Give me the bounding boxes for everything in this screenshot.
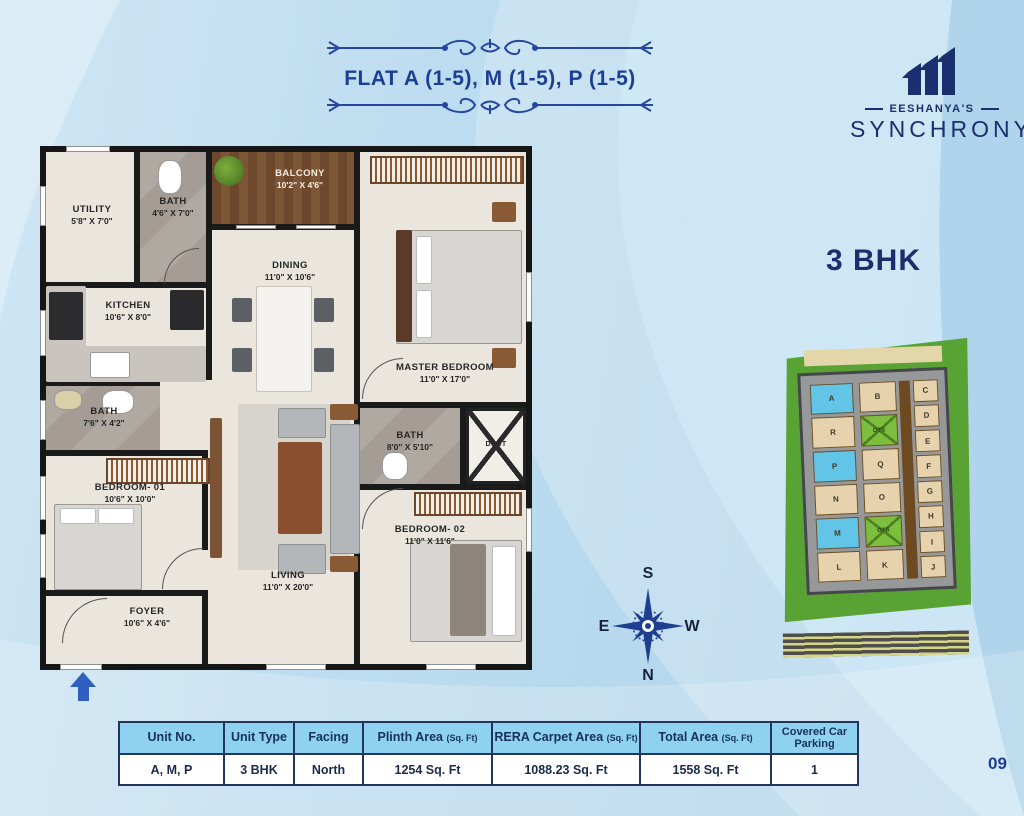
logo-m-icon (900, 38, 964, 96)
blanket (450, 544, 486, 636)
room-label-bath1: BATH 4'6" X 7'0" (140, 196, 206, 219)
room-label-utility: UTILITY 5'8" X 7'0" (48, 204, 136, 227)
col-unit-type: Unit Type (224, 722, 294, 754)
logo-dash-right (981, 108, 999, 110)
balcony-window (296, 225, 336, 229)
dining-table (256, 286, 312, 392)
dining-chair (314, 348, 334, 372)
entrance-door-opening (60, 664, 102, 670)
room-label-foyer: FOYER 10'6" X 4'6" (82, 606, 212, 629)
balcony-window (236, 225, 276, 229)
page-title: FLAT A (1-5), M (1-5), P (1-5) (318, 67, 662, 91)
col-unit-no: Unit No. (119, 722, 224, 754)
cell-rera-carpet-area: 1088.23 Sq. Ft (492, 754, 640, 785)
wall (206, 152, 212, 380)
keyplan-unit: N (814, 483, 858, 515)
col-total-area: Total Area (Sq. Ft) (640, 722, 771, 754)
keyplan-unit: O (863, 481, 902, 513)
flat-title-block: FLAT A (1-5), M (1-5), P (1-5) (318, 36, 662, 122)
plant (214, 156, 244, 186)
entrance-arrow-icon (70, 672, 96, 701)
pillow (98, 508, 134, 524)
toilet (158, 160, 182, 194)
table-header-row: Unit No. Unit Type Facing Plinth Area (S… (119, 722, 858, 754)
wall (354, 402, 526, 408)
compass-rose-icon: S E W N (596, 560, 700, 682)
wardrobe (370, 156, 524, 184)
logo-dash-left (865, 108, 883, 110)
keyplan-unit: I (919, 530, 944, 553)
pillow (492, 546, 516, 636)
room-label-bedroom1: BEDROOM- 01 10'6" X 10'0" (60, 482, 200, 505)
wardrobe (106, 458, 210, 484)
col-plinth-area: Plinth Area (Sq. Ft) (363, 722, 492, 754)
pillow (416, 236, 432, 284)
room-label-bedroom2: BEDROOM- 02 11'0" X 11'6" (364, 524, 496, 547)
key-plan: A R P N M L B OTS Q O OTS K C D E F G (781, 332, 973, 672)
room-label-master-bedroom: MASTER BEDROOM 11'0" X 17'0" (366, 362, 524, 385)
keyplan-unit: R (811, 416, 855, 448)
keyplan-ots: OTS (864, 515, 903, 547)
page-number: 09 (988, 754, 1007, 774)
logo-brand-text: EESHANYA'S (889, 103, 974, 115)
keyplan-road (783, 630, 969, 657)
cell-facing: North (294, 754, 363, 785)
cell-unit-type: 3 BHK (224, 754, 294, 785)
keyplan-unit: D (914, 404, 939, 427)
armchair (278, 408, 326, 438)
cell-total-area: 1558 Sq. Ft (640, 754, 771, 785)
wall (46, 450, 206, 456)
unit-type-heading: 3 BHK (826, 244, 921, 278)
keyplan-unit: A (809, 383, 853, 415)
col-rera-carpet-area: RERA Carpet Area (Sq. Ft) (492, 722, 640, 754)
keyplan-building: A R P N M L B OTS Q O OTS K C D E F G (797, 367, 956, 595)
unit-spec-table: Unit No. Unit Type Facing Plinth Area (S… (118, 721, 859, 786)
keyplan-column-right: C D E F G H I J (913, 379, 946, 579)
logo-brand-row: EESHANYA'S (850, 103, 1014, 115)
keyplan-unit: K (866, 549, 905, 581)
window (40, 186, 46, 226)
cell-car-parking: 1 (771, 754, 858, 785)
sofa (330, 424, 360, 554)
window (40, 534, 46, 578)
toilet (382, 452, 408, 480)
col-facing: Facing (294, 722, 363, 754)
window (526, 272, 532, 322)
tv-unit (210, 418, 222, 558)
cell-unit-no: A, M, P (119, 754, 224, 785)
room-label-balcony: BALCONY 10'2" X 4'6" (242, 168, 358, 191)
window (40, 400, 46, 440)
window (66, 146, 110, 152)
side-table (330, 404, 358, 420)
wardrobe (414, 492, 522, 516)
col-car-parking: Covered Car Parking (771, 722, 858, 754)
keyplan-unit: C (913, 379, 938, 402)
compass-east-label: E (599, 618, 610, 635)
keyplan-unit: M (815, 517, 859, 549)
keyplan-unit: E (915, 429, 940, 452)
nightstand (492, 202, 516, 222)
flourish-divider-icon (325, 36, 655, 60)
brochure-page: FLAT A (1-5), M (1-5), P (1-5) EESHANYA'… (0, 0, 1024, 816)
keyplan-ots: OTS (860, 414, 899, 446)
window (526, 508, 532, 552)
keyplan-column-middle: B OTS Q O OTS K (858, 381, 904, 581)
room-label-bath2: BATH 7'6" X 4'2" (56, 406, 152, 429)
keyplan-unit: Q (861, 448, 900, 480)
pillow (416, 290, 432, 338)
floor-plan: UTILITY 5'8" X 7'0" BATH 4'6" X 7'0" BAL… (40, 146, 532, 670)
keyplan-unit: H (918, 505, 943, 528)
room-label-kitchen: KITCHEN 10'6" X 8'0" (68, 300, 188, 323)
cell-plinth-area: 1254 Sq. Ft (363, 754, 492, 785)
keyplan-unit: L (817, 551, 861, 583)
master-bed (396, 230, 522, 344)
keyplan-unit: G (917, 480, 942, 503)
door-arc (162, 548, 203, 589)
keyplan-unit: F (916, 454, 941, 477)
keyplan-unit: P (812, 450, 856, 482)
wall (354, 484, 526, 490)
headboard (396, 230, 412, 342)
window (266, 664, 326, 670)
room-label-living: LIVING 11'0" X 20'0" (218, 570, 358, 593)
logo-project-name: SYNCHRONY (850, 116, 1014, 143)
window (40, 476, 46, 520)
dining-chair (232, 348, 252, 372)
room-label-bath3: BATH 8'0" X 5'10" (364, 430, 456, 453)
flourish-divider-icon (325, 93, 655, 117)
table-data-row: A, M, P 3 BHK North 1254 Sq. Ft 1088.23 … (119, 754, 858, 785)
window (426, 664, 476, 670)
wall (206, 224, 360, 230)
coffee-table (278, 442, 322, 534)
dining-chair (314, 298, 334, 322)
pillow (60, 508, 96, 524)
keyplan-column-left: A R P N M L (809, 383, 861, 583)
wall (46, 590, 206, 596)
compass-south-label: S (643, 565, 654, 582)
compass-west-label: W (684, 618, 700, 635)
brand-logo: EESHANYA'S SYNCHRONY (850, 38, 1014, 143)
room-label-duct: DUCT (466, 440, 526, 449)
keyplan-unit: J (921, 555, 946, 578)
dining-chair (232, 298, 252, 322)
door-arc (362, 488, 403, 529)
keyplan-unit: B (858, 381, 897, 413)
sink (90, 352, 130, 378)
compass-north-label: N (642, 667, 654, 682)
room-label-dining: DINING 11'0" X 10'6" (234, 260, 346, 283)
